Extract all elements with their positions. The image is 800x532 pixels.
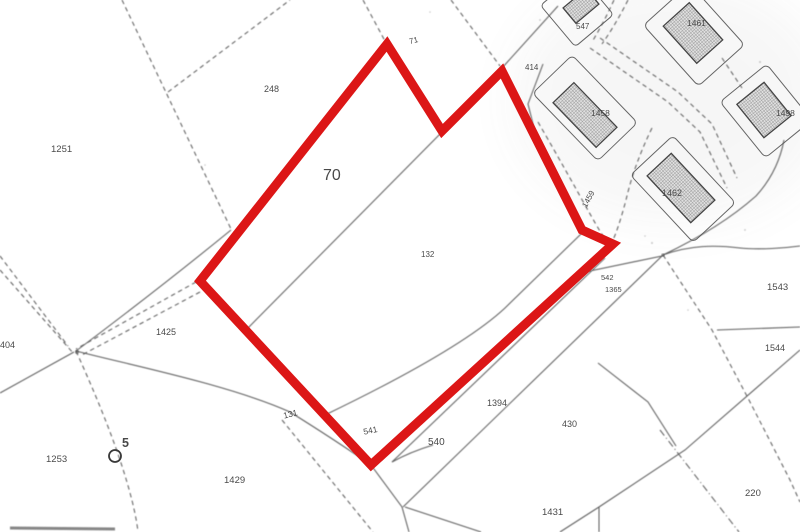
svg-text:1543: 1543: [767, 282, 788, 293]
svg-text:1365: 1365: [605, 285, 622, 294]
svg-text:542: 542: [601, 273, 614, 282]
svg-text:131: 131: [282, 407, 298, 420]
svg-text:1458: 1458: [591, 108, 610, 118]
svg-text:547: 547: [576, 22, 590, 31]
svg-text:220: 220: [745, 488, 761, 499]
svg-text:1462: 1462: [662, 188, 682, 198]
svg-text:1425: 1425: [156, 327, 176, 337]
svg-text:1251: 1251: [51, 144, 72, 155]
svg-text:1544: 1544: [765, 343, 785, 353]
svg-text:540: 540: [428, 437, 445, 448]
svg-text:1253: 1253: [46, 454, 67, 465]
svg-text:414: 414: [525, 63, 539, 72]
svg-text:1431: 1431: [542, 507, 563, 518]
svg-text:248: 248: [264, 84, 279, 94]
svg-text:1394: 1394: [487, 398, 507, 408]
svg-text:71: 71: [408, 35, 419, 46]
svg-text:70: 70: [323, 167, 341, 184]
svg-text:541: 541: [362, 424, 378, 437]
svg-text:430: 430: [562, 419, 577, 429]
svg-text:132: 132: [421, 250, 435, 259]
svg-text:1429: 1429: [224, 475, 245, 486]
svg-text:5: 5: [122, 436, 129, 450]
svg-text:404: 404: [0, 340, 15, 350]
svg-text:1498: 1498: [776, 108, 795, 118]
svg-text:1461: 1461: [687, 18, 706, 28]
